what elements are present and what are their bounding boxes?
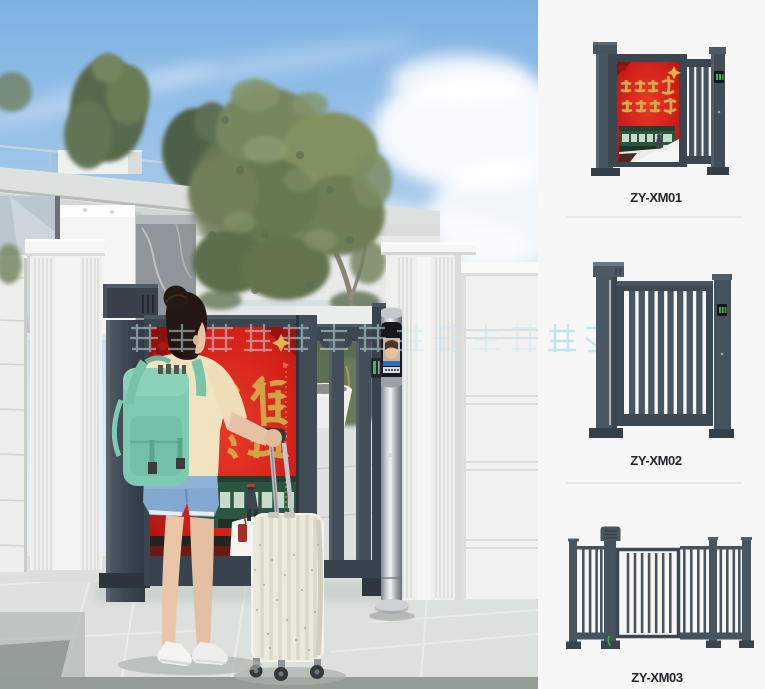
svg-text:ZY-XM03: ZY-XM03 [631, 670, 683, 685]
svg-text:ZY-XM02: ZY-XM02 [630, 453, 682, 468]
svg-text:ZY-XM01: ZY-XM01 [630, 190, 682, 205]
